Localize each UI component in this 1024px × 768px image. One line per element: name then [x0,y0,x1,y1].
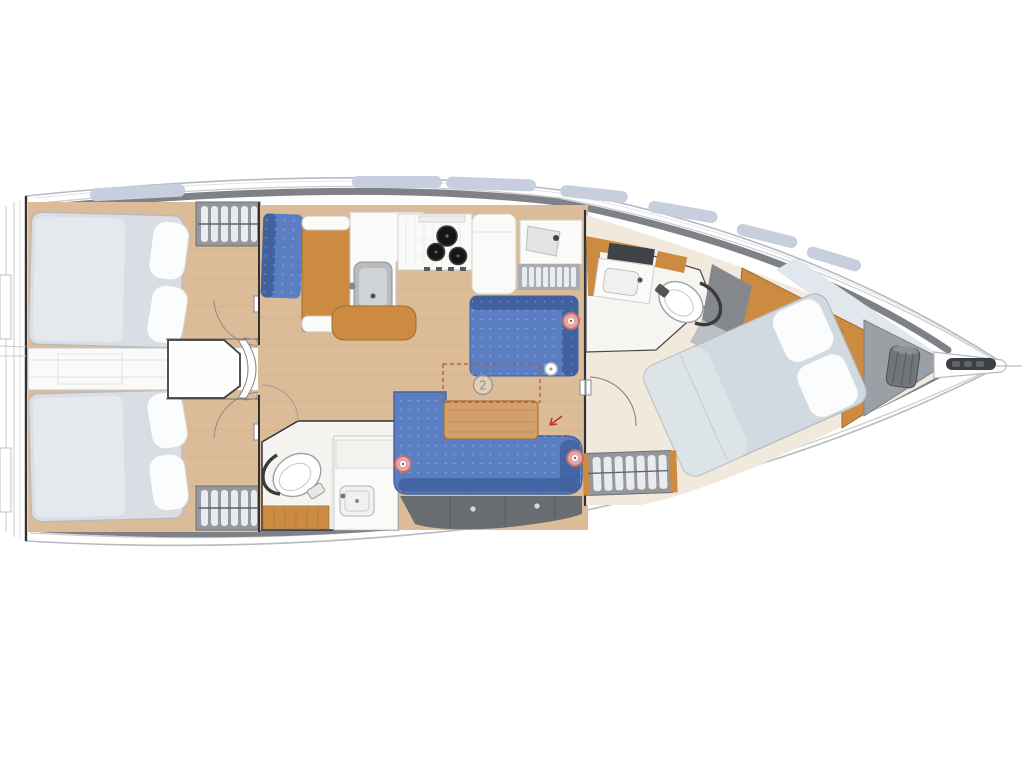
faucet [341,494,346,499]
hanging-locker [196,202,260,246]
boat-floor-plan: 2 [0,0,1024,768]
hatch-marker [395,456,411,472]
faucet [637,277,642,282]
transom-swim-platform [0,196,26,541]
faucet [553,235,559,241]
locker-knob [534,503,539,508]
fiddle-rack [518,264,580,290]
engine-box [168,340,240,398]
vanity-basin [334,436,398,530]
double-berth [28,390,191,522]
double-berth [28,212,191,348]
locker-knob [470,506,475,511]
head-door-leaf [586,380,591,395]
option-annotation: 2 [474,376,493,395]
option-number: 2 [479,379,487,393]
floor-plan-canvas: 2 [0,0,1024,768]
hatch-marker [563,313,579,329]
aft-cabin-port [28,202,261,348]
head-door-leaf [580,380,585,395]
pillow [147,452,190,512]
stove-3-burner [398,214,472,271]
faucet [349,283,356,290]
saloon-table [444,401,538,439]
anchor-bag [885,344,920,389]
forward-hanging-locker [582,450,677,495]
hanging-locker [196,486,260,530]
refrigerator [472,214,516,294]
hatch-marker [567,450,583,466]
galley-seat [261,213,304,298]
deck-fitting-knob [545,363,557,375]
aft-cabin-starboard [28,390,261,532]
side-table [332,306,416,340]
